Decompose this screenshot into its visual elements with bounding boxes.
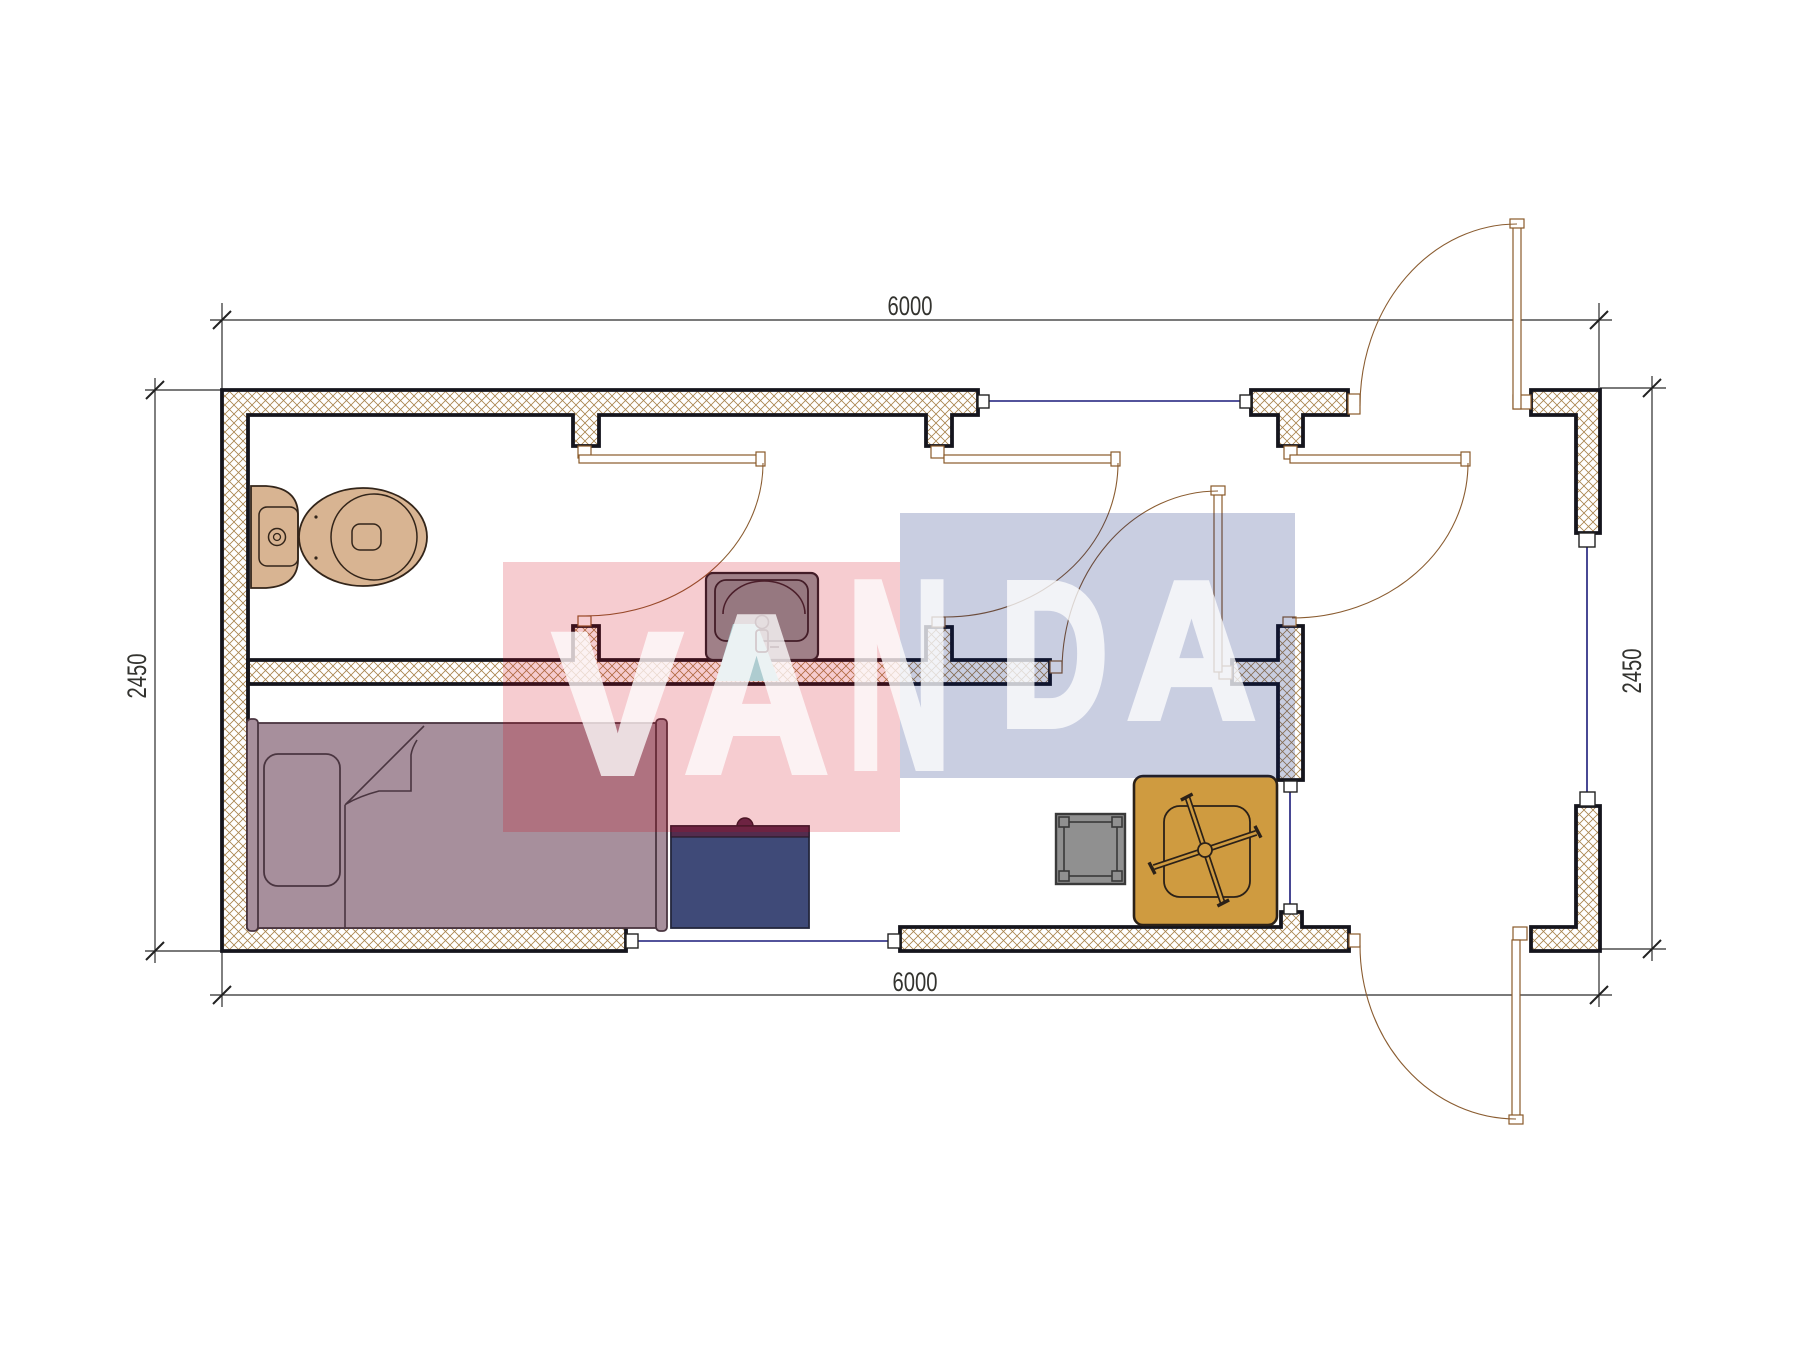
svg-text:2450: 2450 bbox=[122, 654, 152, 699]
svg-text:N: N bbox=[847, 527, 951, 824]
svg-text:A: A bbox=[1128, 543, 1255, 758]
svg-text:D: D bbox=[1000, 541, 1108, 769]
svg-text:V: V bbox=[555, 593, 680, 814]
svg-text:6000: 6000 bbox=[888, 291, 933, 321]
svg-text:2450: 2450 bbox=[1617, 649, 1647, 694]
svg-text:6000: 6000 bbox=[893, 967, 938, 997]
svg-text:A: A bbox=[685, 570, 828, 818]
